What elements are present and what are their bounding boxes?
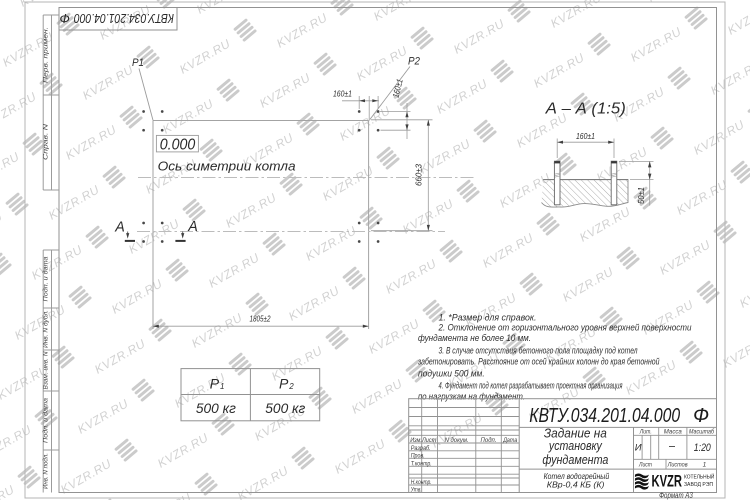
svg-text:KVZR.RU: KVZR.RU — [29, 242, 85, 282]
svg-text:Подп.: Подп. — [481, 436, 497, 444]
svg-text:Лист: Лист — [638, 462, 652, 469]
svg-text:KVZR.RU: KVZR.RU — [138, 490, 194, 500]
svg-text:фундамента не более 10 мм.: фундамента не более 10 мм. — [418, 333, 531, 343]
svg-text:КВТУ.034.201.04.000: КВТУ.034.201.04.000 — [529, 405, 681, 427]
svg-text:KVZR.RU: KVZR.RU — [155, 430, 211, 470]
svg-text:P2: P2 — [408, 56, 420, 68]
svg-text:KVZR.RU: KVZR.RU — [58, 456, 114, 496]
svg-text:Подп. и дата: Подп. и дата — [42, 398, 50, 443]
svg-text:0.000: 0.000 — [160, 137, 196, 154]
svg-text:И: И — [635, 443, 642, 454]
svg-text:50±1: 50±1 — [636, 187, 646, 204]
svg-text:2. Отклонение от горизонтально: 2. Отклонение от горизонтального уровня … — [438, 322, 692, 332]
svg-text:Справ. N: Справ. N — [43, 123, 50, 160]
svg-text:KVZR.RU: KVZR.RU — [451, 16, 507, 56]
svg-text:Утв.: Утв. — [410, 487, 422, 494]
svg-text:KVZR.RU: KVZR.RU — [177, 36, 233, 76]
svg-text:Ось симетрии котла: Ось симетрии котла — [158, 160, 296, 174]
svg-text:P1: P1 — [132, 57, 144, 69]
svg-text:Лит.: Лит. — [639, 429, 652, 436]
svg-text:Разраб.: Разраб. — [411, 444, 431, 452]
svg-text:KVZR.RU: KVZR.RU — [0, 482, 17, 500]
svg-text:KVZR.RU: KVZR.RU — [257, 70, 313, 110]
svg-text:KVZR.RU: KVZR.RU — [92, 336, 148, 376]
svg-text:КОТЕЛЬНЫЙ: КОТЕЛЬНЫЙ — [684, 473, 714, 481]
svg-text:KVZR.RU: KVZR.RU — [206, 250, 262, 290]
svg-text:KVZR.RU: KVZR.RU — [548, 0, 604, 31]
svg-text:KVZR.RU: KVZR.RU — [594, 144, 650, 184]
svg-text:Инв. N подл.: Инв. N подл. — [42, 453, 50, 489]
svg-text:KVZR.RU: KVZR.RU — [286, 283, 342, 323]
svg-text:Н.контр.: Н.контр. — [411, 479, 432, 486]
svg-text:3. В случае отсутствия бетонно: 3. В случае отсутствия бетонного пола пл… — [439, 345, 638, 355]
svg-text:KVZR.RU: KVZR.RU — [0, 422, 34, 462]
svg-text:по нагрузкам на фундамент.: по нагрузкам на фундамент. — [418, 391, 525, 401]
svg-text:KVZR.RU: KVZR.RU — [531, 50, 587, 90]
svg-text:KVZR.RU: KVZR.RU — [349, 376, 405, 416]
svg-text:KVZR.RU: KVZR.RU — [63, 122, 119, 162]
svg-text:KVZR.RU: KVZR.RU — [628, 24, 684, 64]
svg-text:KVZR.RU: KVZR.RU — [708, 57, 750, 97]
svg-text:160±1: 160±1 — [576, 131, 595, 141]
svg-text:KVZR.RU: KVZR.RU — [725, 0, 750, 38]
svg-text:забетонировать. Расстояние от: забетонировать. Расстояние от осей крайн… — [417, 357, 659, 367]
svg-text:P: P — [210, 375, 220, 391]
svg-text:KVZR.RU: KVZR.RU — [737, 270, 750, 310]
svg-text:KVZR.RU: KVZR.RU — [674, 177, 730, 217]
svg-text:KVZR.RU: KVZR.RU — [0, 209, 5, 249]
svg-text:Ф: Ф — [693, 405, 709, 427]
svg-text:KVZR.RU: KVZR.RU — [337, 103, 393, 143]
svg-text:160±1: 160±1 — [333, 89, 352, 99]
svg-text:Изм.Лист: Изм.Лист — [410, 437, 436, 444]
svg-text:KVZR.RU: KVZR.RU — [235, 463, 291, 500]
svg-text:KVZR.RU: KVZR.RU — [269, 343, 325, 383]
svg-text:1805±2: 1805±2 — [250, 314, 271, 324]
svg-text:KVZR: KVZR — [652, 472, 683, 490]
svg-text:1: 1 — [703, 462, 707, 469]
svg-text:4. Фундамент под котел разраба: 4. Фундамент под котел разрабатывает про… — [439, 380, 623, 390]
svg-text:KVZR.RU: KVZR.RU — [657, 237, 713, 277]
svg-text:фундамента: фундамента — [542, 452, 608, 467]
svg-text:Взам. инв. N: Взам. инв. N — [43, 351, 50, 389]
svg-text:KVZR.RU: KVZR.RU — [80, 62, 136, 102]
svg-text:Ф: Ф — [60, 11, 70, 26]
svg-text:Пров.: Пров. — [411, 452, 425, 459]
svg-text:Дата: Дата — [502, 437, 517, 444]
svg-text:KVZR.RU: KVZR.RU — [332, 436, 388, 476]
svg-text:Листов: Листов — [667, 462, 688, 469]
svg-text:A: A — [187, 219, 198, 235]
svg-text:KVZR.RU: KVZR.RU — [480, 230, 536, 270]
svg-text:660±3: 660±3 — [414, 164, 424, 186]
svg-text:Масса: Масса — [664, 429, 682, 436]
svg-text:KVZR.RU: KVZR.RU — [126, 216, 182, 256]
svg-text:Инв. N дубл.: Инв. N дубл. — [42, 310, 50, 348]
svg-text:KVZR.RU: KVZR.RU — [160, 96, 216, 136]
svg-text:Масштаб: Масштаб — [689, 428, 714, 436]
svg-text:KVZR.RU: KVZR.RU — [274, 10, 330, 50]
svg-text:KVZR.RU: KVZR.RU — [691, 117, 747, 157]
svg-text:KVZR.RU: KVZR.RU — [366, 316, 422, 356]
svg-text:KVZR.RU: KVZR.RU — [303, 223, 359, 263]
svg-text:2: 2 — [288, 382, 294, 391]
svg-text:А – А (1:5): А – А (1:5) — [545, 100, 626, 117]
svg-text:A: A — [114, 219, 125, 235]
svg-text:1. *Размер для справок.: 1. *Размер для справок. — [439, 312, 537, 322]
svg-text:KVZR.RU: KVZR.RU — [223, 190, 279, 230]
svg-text:Формат А3: Формат А3 — [659, 491, 693, 500]
svg-text:KVZR.RU: KVZR.RU — [371, 0, 427, 24]
svg-text:500 кг: 500 кг — [196, 401, 236, 416]
svg-text:KVZR.RU: KVZR.RU — [417, 136, 473, 176]
svg-text:подушки 500 мм.: подушки 500 мм. — [418, 368, 485, 378]
svg-text:KVZR.RU: KVZR.RU — [189, 310, 245, 350]
svg-text:KVZR.RU: KVZR.RU — [383, 256, 439, 296]
svg-text:1: 1 — [220, 382, 224, 391]
svg-text:KVZR.RU: KVZR.RU — [320, 163, 376, 203]
svg-text:P: P — [279, 375, 289, 391]
svg-text:500 кг: 500 кг — [265, 401, 305, 416]
svg-text:KVZR.RU: KVZR.RU — [17, 0, 73, 10]
svg-text:ЗАВОД РЭП: ЗАВОД РЭП — [684, 482, 713, 488]
svg-text:KVZR.RU: KVZR.RU — [577, 204, 633, 244]
svg-text:N докум.: N докум. — [445, 436, 469, 444]
svg-text:КВр-0,4 КБ (К): КВр-0,4 КБ (К) — [547, 480, 605, 489]
svg-text:Т.контр.: Т.контр. — [411, 460, 432, 467]
svg-text:KVZR.RU: KVZR.RU — [46, 182, 102, 222]
svg-text:KVZR.RU: KVZR.RU — [560, 264, 616, 304]
svg-text:KVZR.RU: KVZR.RU — [0, 149, 22, 189]
svg-text:KVZR.RU: KVZR.RU — [109, 276, 165, 316]
svg-text:KVZR.RU: KVZR.RU — [434, 76, 490, 116]
svg-text:KVZR.RU: KVZR.RU — [75, 396, 131, 436]
svg-text:КВТУ.034.201.04.000: КВТУ.034.201.04.000 — [73, 11, 174, 26]
svg-text:Перв. примен.: Перв. примен. — [43, 27, 50, 83]
svg-text:Подп. и дата: Подп. и дата — [42, 256, 50, 301]
svg-text:KVZR.RU: KVZR.RU — [0, 89, 39, 129]
svg-text:1:20: 1:20 — [694, 442, 712, 454]
